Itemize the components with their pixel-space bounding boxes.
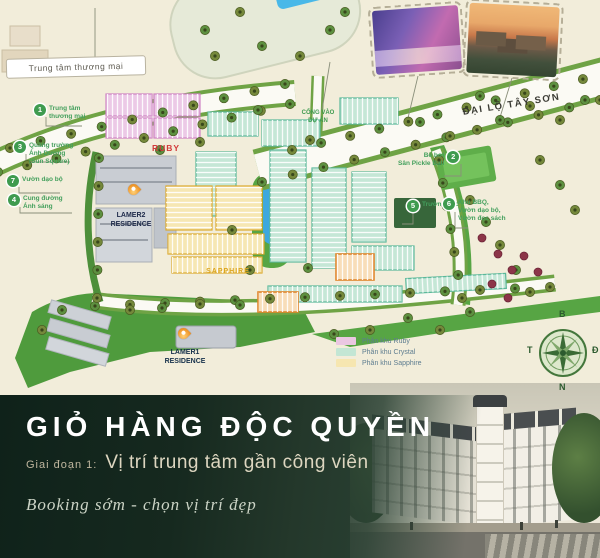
legend-swatch-sapphire (336, 359, 356, 367)
callout-number: 3 (14, 141, 26, 153)
gate-label: CỔNG VÀO DỰ ÁN (288, 110, 348, 125)
inset-photo-night-street (372, 5, 462, 75)
callout-label: Bể bơi Sân Pickle Ball (398, 151, 444, 168)
callout-light-road: 4 Cung đường Ánh sáng (8, 194, 63, 211)
inset-photo-aerial-sunset (466, 3, 560, 78)
legend-label: Phân khu Crystal (362, 349, 415, 356)
callout-sun-square: 3 Quảng trường Ánh Dương (Sun Square) (14, 141, 73, 165)
poster: Trung tâm thương mại ĐẠI LỘ TÂY SƠN CỔNG… (0, 0, 600, 558)
compass-south: N (559, 382, 566, 392)
phase-prefix: Giai đoạn 1: (26, 459, 97, 471)
residence-lamer1-label: LAMER1 RESIDENCE (150, 349, 220, 367)
legend-row: Phân khu Ruby (336, 337, 422, 345)
banner-tagline: Booking sớm - chọn vị trí đẹp (26, 495, 435, 515)
compass-west: T (527, 345, 533, 355)
phase-text: Vị trí trung tâm gần công viên (105, 452, 368, 474)
zone-ruby-label: RUBY (138, 143, 194, 153)
callout-number: 4 (8, 194, 20, 206)
zone-sapphire-label: SAPPHIRE (188, 268, 268, 275)
callout-pool: Bể bơi Sân Pickle Ball 2 (398, 151, 459, 168)
callout-label: Cung đường Ánh sáng (23, 194, 63, 211)
callout-label: Quảng trường Ánh Dương (Sun Square) (29, 141, 73, 165)
callout-number: 6 (443, 198, 455, 210)
callout-number: 5 (407, 200, 419, 212)
legend-label: Phân khu Ruby (362, 338, 410, 345)
legend-label: Phân khu Sapphire (362, 360, 422, 367)
zone-legend: Phân khu Ruby Phân khu Crystal Phân khu … (336, 337, 422, 367)
promo-banner: GIỎ HÀNG ĐỘC QUYỀN Giai đoạn 1: Vị trí t… (0, 395, 600, 558)
legend-row: Phân khu Crystal (336, 348, 422, 356)
callout-label: Vườn dạo bộ (22, 175, 63, 184)
callout-mall: 1 Trung tâm thương mại (34, 104, 85, 121)
callout-bbq: 6 Khu BBQ, Vườn dạo bộ, Vườn đọc sách (443, 198, 506, 222)
callout-label: Trung tâm thương mại (49, 104, 85, 121)
callout-walking-garden: 7 Vườn dạo bộ (7, 175, 63, 187)
banner-text-block: GIỎ HÀNG ĐỘC QUYỀN Giai đoạn 1: Vị trí t… (26, 411, 435, 515)
banner-title: GIỎ HÀNG ĐỘC QUYỀN (26, 411, 435, 443)
legend-swatch-ruby (336, 337, 356, 345)
compass-east: Đ (592, 345, 599, 355)
mall-label-box: Trung tâm thương mại (6, 55, 146, 79)
callout-label: Khu BBQ, Vườn dạo bộ, Vườn đọc sách (458, 198, 506, 222)
compass-rose: B Đ N T (528, 310, 598, 394)
legend-row: Phân khu Sapphire (336, 359, 422, 367)
callout-number: 2 (447, 151, 459, 163)
residence-lamer2-label: LAMER2 RESIDENCE (100, 212, 162, 230)
callout-number: 7 (7, 175, 19, 187)
banner-phase-line: Giai đoạn 1: Vị trí trung tâm gần công v… (26, 452, 435, 474)
compass-graphic (530, 320, 596, 386)
callout-number: 1 (34, 104, 46, 116)
offsite-building (10, 26, 40, 46)
legend-swatch-crystal (336, 348, 356, 356)
compass-north: B (559, 309, 566, 319)
master-plan-map: Trung tâm thương mại ĐẠI LỘ TÂY SƠN CỔNG… (0, 0, 600, 395)
